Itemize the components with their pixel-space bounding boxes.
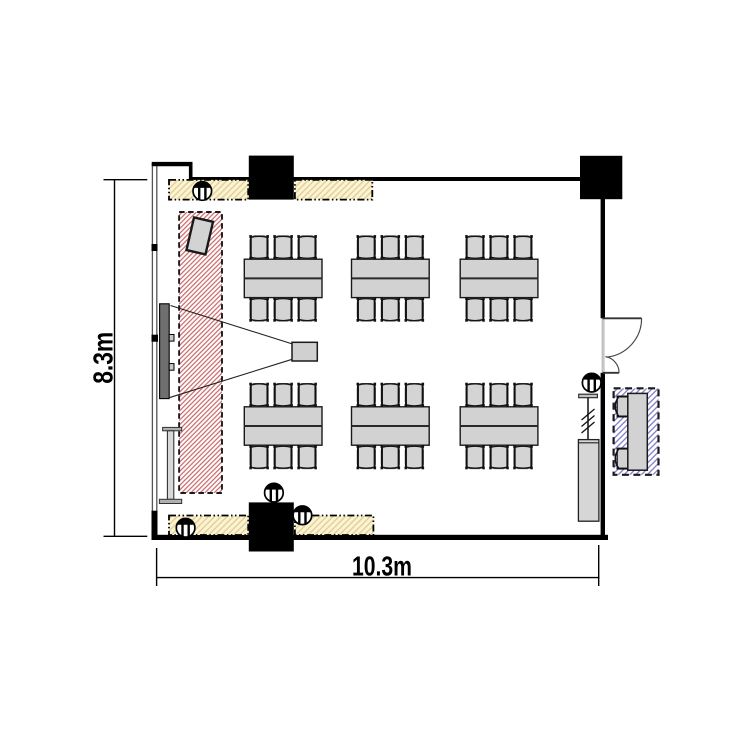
svg-text:10.3m: 10.3m [352, 551, 412, 582]
svg-text:8.3m: 8.3m [88, 332, 119, 384]
